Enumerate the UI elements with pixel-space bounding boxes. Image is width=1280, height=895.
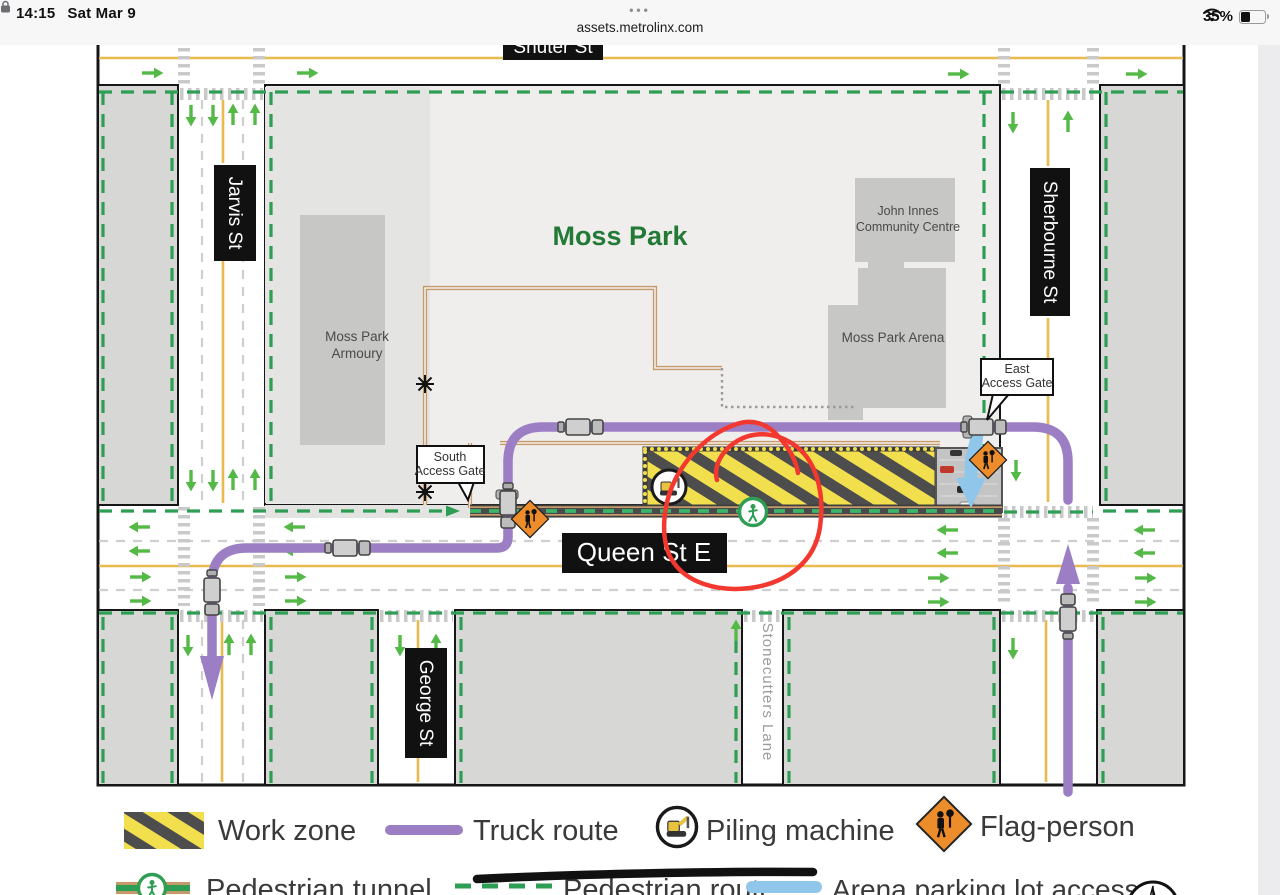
svg-text:South: South bbox=[434, 450, 467, 464]
street-label-queen: Queen St E bbox=[562, 533, 727, 573]
legend: Work zone Truck route Piling machine Fla… bbox=[116, 797, 1178, 895]
url-text: assets.metrolinx.com bbox=[577, 20, 704, 35]
lock-icon bbox=[0, 0, 11, 13]
construction-notice-map: South Access Gate East Access Gate Moss … bbox=[0, 0, 1280, 895]
legend-work-zone-swatch bbox=[124, 812, 204, 849]
svg-text:George St: George St bbox=[415, 660, 436, 747]
wifi-icon bbox=[1203, 8, 1221, 22]
street-label-george: George St bbox=[405, 648, 447, 758]
legend-flag-person-label: Flag-person bbox=[980, 811, 1135, 843]
ipad-screen: South Access Gate East Access Gate Moss … bbox=[0, 0, 1280, 895]
legend-work-zone-label: Work zone bbox=[218, 815, 356, 847]
john-innes-label: John Innes bbox=[877, 204, 938, 218]
battery-icon bbox=[1239, 10, 1266, 24]
car-icon bbox=[950, 450, 962, 456]
legend-truck-route-label: Truck route bbox=[473, 815, 619, 847]
svg-text:Queen St E: Queen St E bbox=[577, 537, 711, 567]
svg-text:Sherbourne St: Sherbourne St bbox=[1039, 181, 1060, 304]
legend-piling-machine-label: Piling machine bbox=[706, 815, 895, 847]
legend-flag-person-icon bbox=[917, 797, 971, 851]
legend-tunnel-icon bbox=[139, 875, 166, 895]
page-edge-strip bbox=[1258, 45, 1280, 895]
legend-tunnel-label: Pedestrian tunnel bbox=[206, 874, 432, 895]
stonecutters-lane-label: Stonecutters Lane bbox=[759, 623, 776, 762]
fence-gate-star bbox=[416, 483, 434, 501]
status-bar: 14:15Sat Mar 9 ••• assets.metrolinx.com … bbox=[0, 0, 1280, 45]
moss-park-label: Moss Park bbox=[552, 221, 688, 251]
arena-label: Moss Park Arena bbox=[842, 330, 945, 345]
svg-text:Community Centre: Community Centre bbox=[856, 220, 960, 234]
svg-text:East: East bbox=[1004, 362, 1030, 376]
street-label-jarvis: Jarvis St bbox=[214, 165, 256, 261]
svg-text:Armoury: Armoury bbox=[331, 346, 382, 361]
street-label-sherbourne: Sherbourne St bbox=[1030, 168, 1070, 316]
car-icon bbox=[940, 466, 954, 473]
legend-piling-machine-icon bbox=[657, 807, 696, 846]
armoury-label: Moss Park bbox=[325, 329, 389, 344]
svg-text:Access Gate: Access Gate bbox=[415, 464, 486, 478]
svg-text:Jarvis St: Jarvis St bbox=[224, 177, 245, 251]
svg-text:Access Gate: Access Gate bbox=[982, 376, 1053, 390]
legend-arena-access-label: Arena parking lot access bbox=[832, 874, 1139, 895]
pedestrian-tunnel-icon bbox=[740, 499, 767, 526]
address-bar[interactable]: assets.metrolinx.com bbox=[577, 20, 704, 35]
toolbar-dots-button[interactable]: ••• bbox=[0, 3, 1280, 17]
fence-gate-star bbox=[416, 375, 434, 393]
